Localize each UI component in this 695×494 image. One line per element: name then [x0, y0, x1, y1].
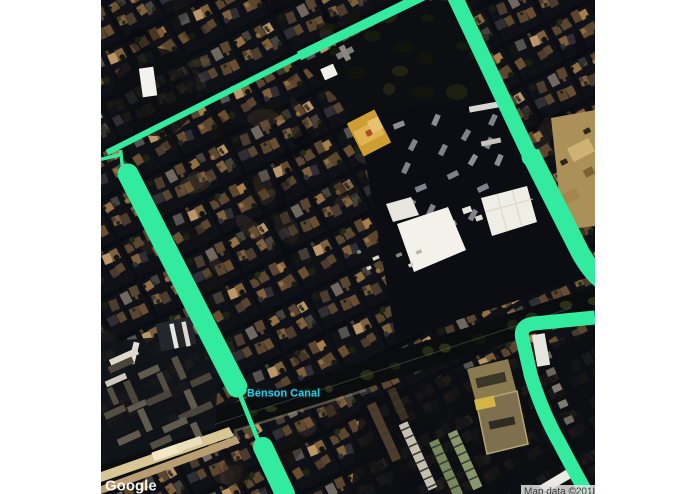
- svg-text:Map data ©2018: Map data ©2018: [524, 487, 595, 494]
- svg-text:Benson Canal: Benson Canal: [247, 388, 320, 400]
- svg-text:Google: Google: [105, 478, 157, 494]
